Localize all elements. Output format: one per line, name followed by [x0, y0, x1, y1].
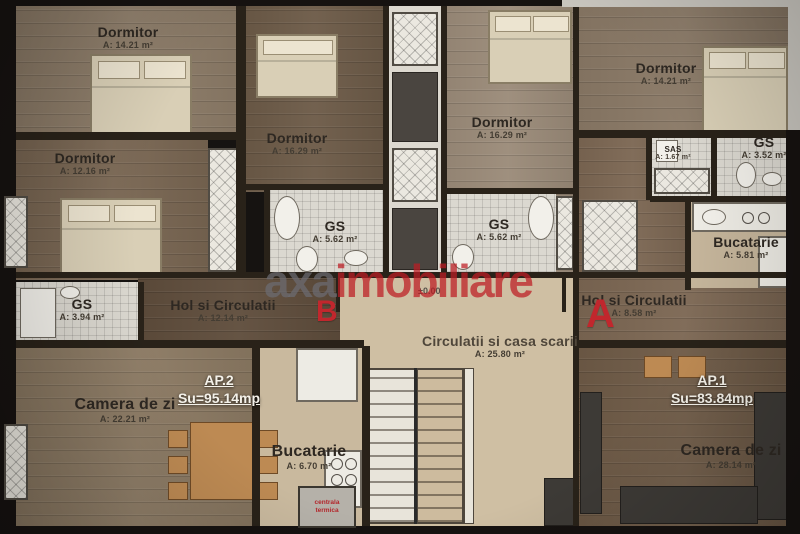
tv-unit: [580, 392, 602, 514]
room-label-camera-right: Camera de zi A: 28.14 m²: [680, 442, 781, 471]
pillow: [748, 52, 785, 69]
wall: [573, 344, 579, 528]
room-label-gs-left: GS A: 3.94 m²: [59, 296, 104, 322]
apartment-label-ap1: AP.1 Su=83.84mp: [671, 372, 753, 407]
kitchen-counter: [692, 202, 788, 232]
pillow: [263, 40, 333, 55]
kitchen-counter: [296, 348, 358, 402]
window: [4, 196, 28, 268]
wall: [16, 132, 242, 140]
sink: [702, 209, 726, 225]
photo-edge-right: [786, 130, 800, 534]
bed: [60, 198, 162, 278]
door-leaf: [562, 278, 566, 312]
chair: [168, 456, 188, 474]
wall: [650, 196, 790, 202]
pillow: [114, 205, 156, 222]
pillow: [495, 16, 531, 32]
bed: [702, 46, 788, 134]
room-label-dormitor-top-left: Dormitor A: 14.21 m²: [98, 24, 159, 50]
photo-edge-bottom: [0, 526, 800, 534]
wall: [573, 6, 579, 344]
staircase: [416, 368, 464, 524]
stair-strip: [464, 368, 474, 524]
shower: [20, 288, 56, 338]
chair: [168, 482, 188, 500]
shaft-dark: [392, 72, 438, 142]
bed: [256, 34, 338, 98]
boiler-label: centrala termica: [305, 499, 349, 515]
photo-edge-top-right: [562, 0, 800, 7]
room-label-gs-center-left: GS A: 5.62 m²: [312, 218, 357, 244]
boiler-closet: centrala termica: [298, 486, 356, 528]
apartment-label-ap2: AP.2 Su=95.14mp: [178, 372, 260, 407]
wall: [646, 136, 652, 200]
wardrobe: [556, 196, 574, 270]
elevator-shaft: [392, 12, 438, 66]
room-label-stairs: Circulatii si casa scarii A: 25.80 m²: [422, 333, 578, 359]
pillow: [709, 52, 746, 69]
room-label-dormitor-center: Dormitor A: 16.29 m²: [472, 114, 533, 140]
pillow: [98, 61, 140, 79]
closet-sas: [654, 168, 710, 194]
pillow: [144, 61, 186, 79]
shaft-dark: [392, 208, 438, 270]
armchair: [644, 356, 672, 378]
photo-edge-right-top: [788, 0, 800, 132]
sink: [344, 250, 368, 266]
bed: [90, 54, 192, 138]
wall: [16, 272, 790, 278]
room-label-hol-left: Hol si Circulatii A: 12.14 m²: [170, 297, 275, 323]
wall: [16, 340, 364, 348]
room-label-gs-right: GS A: 3.52 m²: [741, 134, 786, 160]
room-label-bucatarie-bottom: Bucatarie A: 6.70 m²: [272, 443, 347, 472]
photo-edge-top: [0, 0, 562, 6]
wardrobe: [582, 200, 638, 272]
bathtub: [274, 196, 300, 240]
wall: [711, 136, 717, 200]
wall: [441, 6, 447, 276]
dining-table: [190, 422, 256, 500]
wall: [264, 190, 270, 274]
wall: [383, 6, 389, 276]
staircase: [368, 368, 416, 524]
room-label-bucatarie-right: Bucatarie A: 5.81 m²: [713, 234, 779, 260]
room-label-sas: SAS A: 1.67 m²: [655, 145, 690, 162]
room-label-gs-center-right: GS A: 5.62 m²: [476, 216, 521, 242]
toilet: [736, 162, 756, 188]
stair-rail: [414, 368, 417, 524]
bathtub: [528, 196, 554, 240]
toilet: [296, 246, 318, 272]
room-label-dormitor-top-right: Dormitor A: 14.21 m²: [636, 60, 697, 86]
sink: [762, 172, 782, 186]
wall: [442, 188, 574, 194]
stairwell-door: [544, 478, 576, 526]
wall: [362, 346, 370, 528]
chair: [258, 482, 278, 500]
section-marker-a: A: [586, 292, 615, 337]
toilet: [452, 244, 474, 270]
wall: [236, 6, 246, 276]
room-label-camera-left: Camera de zi A: 22.21 m²: [74, 396, 175, 425]
pillow: [533, 16, 569, 32]
wall: [578, 340, 790, 348]
room-label-dormitor-center-left: Dormitor A: 16.29 m²: [267, 130, 328, 156]
sofa: [620, 486, 758, 524]
level-marker: ±0.00: [418, 286, 440, 296]
room-label-dormitor-left: Dormitor A: 12.16 m²: [55, 150, 116, 176]
elevator-shaft: [392, 148, 438, 202]
wall: [138, 282, 144, 340]
window: [4, 424, 28, 500]
section-marker-b: B: [316, 295, 338, 329]
floor-plan: centrala termica Dormitor A: 14.21 m² Do…: [0, 0, 800, 534]
chair: [168, 430, 188, 448]
pillow: [68, 205, 110, 222]
bed: [488, 10, 572, 84]
